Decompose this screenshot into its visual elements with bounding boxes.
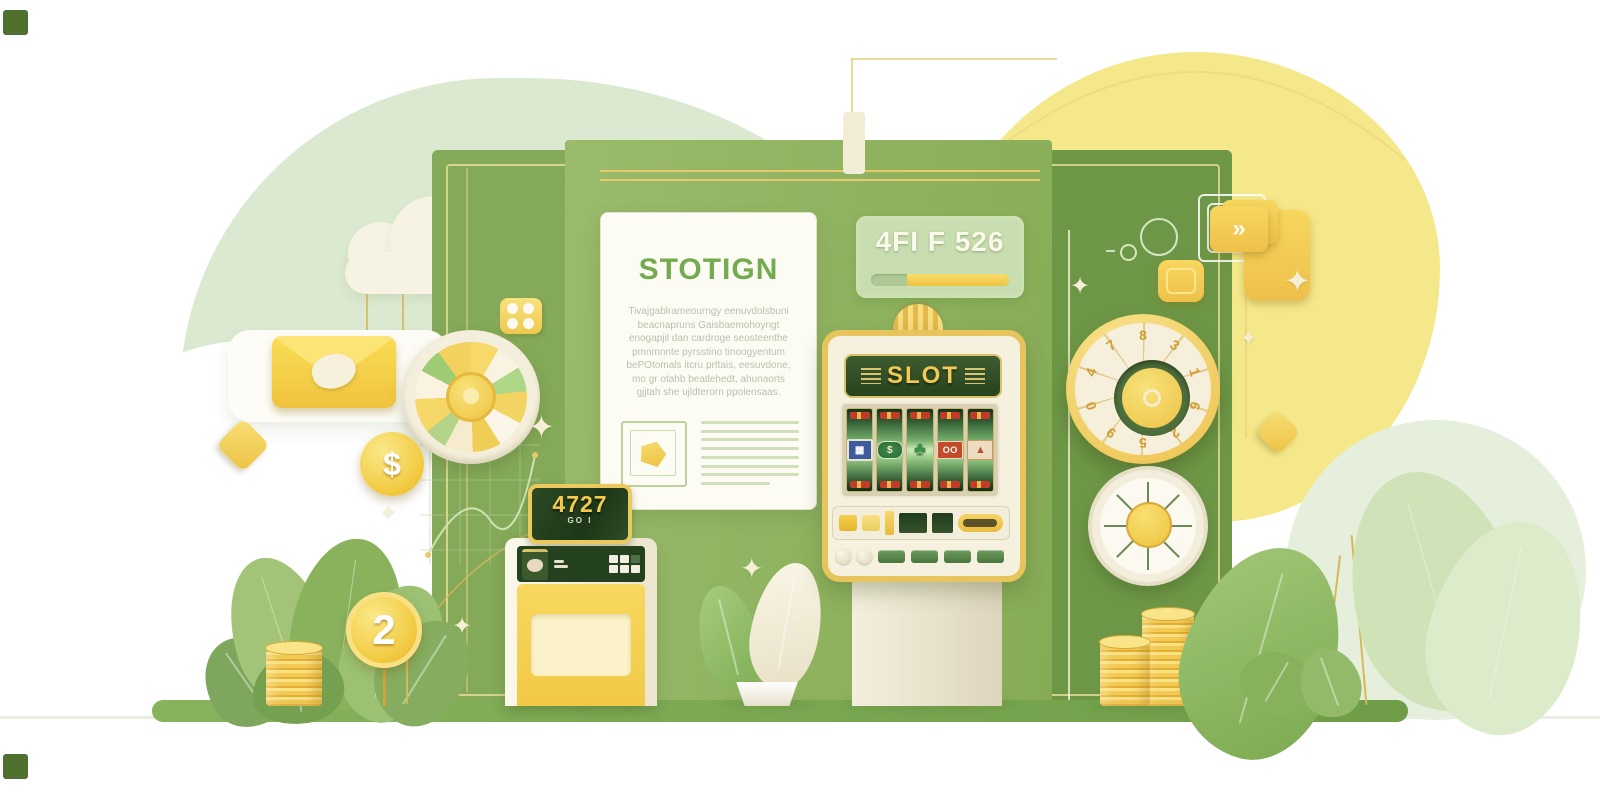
kiosk-display: 4727 GO I bbox=[528, 484, 632, 544]
dial-digit: 3 bbox=[1167, 336, 1183, 354]
chevron-card: » bbox=[1210, 206, 1268, 252]
slot-reel: $ bbox=[876, 408, 903, 492]
combination-dial: 8 3 1 6 2 5 9 0 4 7 bbox=[1066, 314, 1220, 464]
slot-round-button bbox=[857, 549, 872, 564]
corner-mark-bottom-left bbox=[3, 754, 28, 779]
kiosk-screen-dashes bbox=[554, 558, 568, 570]
kiosk-display-value: 4727 bbox=[532, 491, 628, 518]
slot-green-button bbox=[977, 550, 1004, 563]
sun-wheel bbox=[1088, 466, 1208, 586]
envelope-icon bbox=[272, 336, 396, 408]
panel-line bbox=[1068, 230, 1070, 704]
dial-face: 8 3 1 6 2 5 9 0 4 7 bbox=[1075, 323, 1211, 455]
slot-reel-window: ▦ $ ♣ OO ▲ bbox=[840, 402, 1000, 498]
kiosk-screen-cell bbox=[522, 549, 548, 580]
outline-circle-icon bbox=[1140, 218, 1178, 256]
badge-progress-fill bbox=[907, 274, 1009, 286]
slot-reel: OO bbox=[937, 408, 964, 492]
dollar-symbol: $ bbox=[383, 446, 401, 483]
slot-header: SLOT bbox=[844, 354, 1002, 398]
badge-text: 4FI F 526 bbox=[859, 226, 1021, 258]
score-badge: 4FI F 526 bbox=[856, 216, 1024, 298]
dial-digit: 1 bbox=[1186, 366, 1204, 378]
coin-number: 2 bbox=[372, 606, 395, 654]
document-body: Tivajgablrameourngy eenuvdolsbuni beacna… bbox=[623, 305, 794, 400]
document-thumbnail bbox=[630, 430, 676, 476]
slot-lever-slot bbox=[885, 511, 893, 535]
reel-symbol-dollar: $ bbox=[877, 441, 903, 459]
slot-round-button bbox=[836, 549, 851, 564]
kiosk-body bbox=[505, 538, 657, 706]
document-thumbnail-frame bbox=[621, 421, 687, 487]
reel-symbol-clover: ♣ bbox=[914, 439, 926, 461]
fortune-wheel bbox=[402, 330, 540, 464]
document-sheet: STOTIGN Tivajgablrameourngy eenuvdolsbun… bbox=[600, 212, 817, 510]
slot-mini-screen bbox=[932, 513, 954, 533]
deco-line bbox=[851, 58, 853, 114]
dial-digit: 8 bbox=[1139, 327, 1147, 343]
slot-reel: ▲ bbox=[967, 408, 994, 492]
slot-button-yellow bbox=[839, 515, 857, 531]
kiosk-front-inset bbox=[531, 614, 631, 676]
panel-tab bbox=[843, 112, 865, 174]
dial-digit: 0 bbox=[1082, 400, 1100, 412]
kiosk-display-sub: GO I bbox=[532, 516, 628, 525]
slot-header-stripes bbox=[861, 368, 881, 384]
slot-button-yellow-light bbox=[862, 515, 880, 531]
slot-title: SLOT bbox=[887, 362, 959, 390]
reel-symbol-double-o: OO bbox=[937, 441, 963, 459]
slot-reel: ♣ bbox=[906, 408, 933, 492]
kiosk-screen-grid bbox=[609, 555, 640, 573]
slot-green-button bbox=[944, 550, 971, 563]
sparkle-icon: ✦ bbox=[1284, 262, 1311, 300]
slot-green-button bbox=[878, 550, 905, 563]
slot-button-row bbox=[836, 546, 1006, 566]
yellow-square-button bbox=[1158, 260, 1204, 302]
badge-progress-track bbox=[871, 274, 1009, 286]
dial-inner-ring bbox=[1114, 360, 1190, 436]
slot-reel: ▦ bbox=[846, 408, 873, 492]
fortune-wheel-center bbox=[446, 372, 496, 422]
sun-wheel-face bbox=[1100, 478, 1196, 574]
dial-center-mark bbox=[1143, 389, 1161, 407]
sparkle-icon: ✦ bbox=[528, 408, 555, 446]
slot-green-button bbox=[911, 550, 938, 563]
chevron-icon: » bbox=[1232, 215, 1245, 243]
panel-top-line bbox=[600, 179, 1040, 181]
document-title: STOTIGN bbox=[601, 253, 816, 287]
coin-stack-medium bbox=[1100, 642, 1150, 706]
dice-icon bbox=[500, 298, 542, 334]
sparkle-icon: ✦ bbox=[740, 552, 763, 585]
dial-digit: 7 bbox=[1103, 336, 1119, 354]
sparkle-icon: ✦ bbox=[1070, 272, 1090, 301]
dial-center-knob bbox=[1122, 368, 1182, 428]
reel-symbol-ticket: ▦ bbox=[847, 439, 873, 461]
dial-digit: 5 bbox=[1139, 435, 1147, 451]
reel-symbol-mountain: ▲ bbox=[967, 440, 993, 460]
kiosk-screen bbox=[517, 546, 645, 582]
sun-wheel-center bbox=[1126, 502, 1172, 548]
kiosk-front-panel bbox=[517, 584, 645, 706]
dollar-coin: $ bbox=[360, 432, 424, 496]
coin-stack-left bbox=[266, 648, 322, 706]
dial-digit: 4 bbox=[1082, 366, 1100, 378]
illustration-canvas: $ STOTIGN Tivajgablrameourngy eenuvdolsb… bbox=[0, 0, 1600, 800]
slot-coin-display bbox=[958, 514, 1003, 532]
outline-circle-small-icon bbox=[1120, 244, 1137, 261]
document-list-lines bbox=[701, 421, 799, 485]
slot-header-stripes bbox=[965, 368, 985, 384]
play-shape-icon bbox=[637, 438, 669, 469]
slot-mini-screen bbox=[899, 513, 927, 533]
corner-mark-top-left bbox=[3, 10, 28, 35]
slot-machine: SLOT ▦ $ ♣ OO ▲ bbox=[822, 330, 1026, 582]
slot-control-panel bbox=[832, 506, 1010, 540]
fortune-wheel-hub bbox=[463, 388, 479, 404]
deco-line bbox=[851, 58, 1057, 60]
panel-top-line bbox=[600, 170, 1040, 172]
dial-digit: 9 bbox=[1103, 424, 1119, 442]
sparkle-icon: ✦ bbox=[380, 500, 397, 525]
dash-line bbox=[1106, 250, 1115, 252]
number-coin: 2 bbox=[346, 592, 422, 668]
sparkle-icon: ✦ bbox=[1240, 326, 1257, 351]
